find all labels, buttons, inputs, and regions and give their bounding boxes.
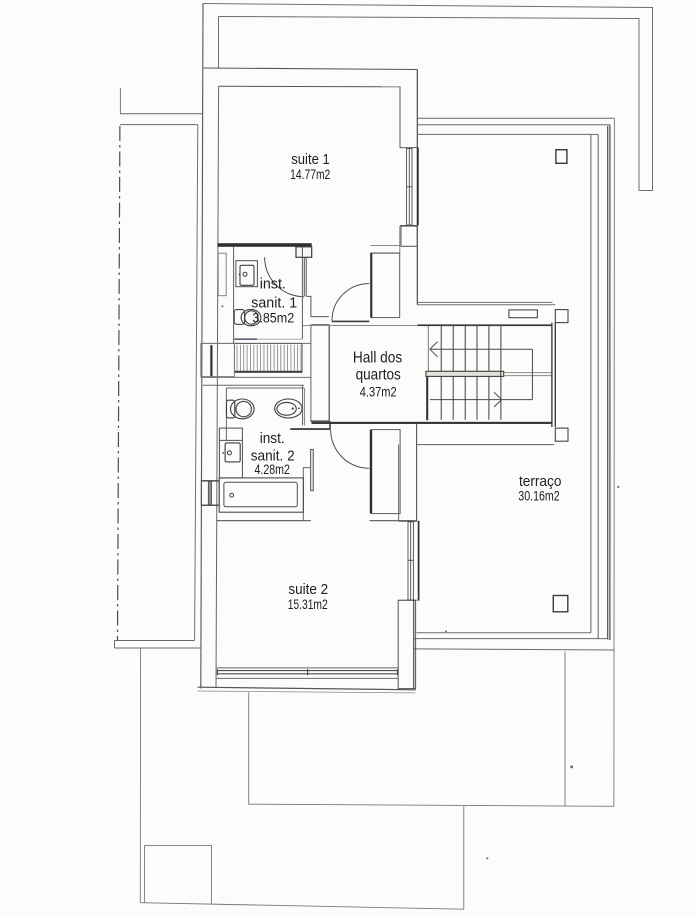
svg-text:4.28m2: 4.28m2 xyxy=(255,462,290,477)
svg-text:15.31m2: 15.31m2 xyxy=(288,597,328,612)
svg-text:14.77m2: 14.77m2 xyxy=(290,167,330,182)
svg-text:suite 2: suite 2 xyxy=(288,581,328,598)
svg-text:Hall dos: Hall dos xyxy=(353,349,402,366)
svg-text:sanit. 1: sanit. 1 xyxy=(251,295,297,312)
svg-text:suite 1: suite 1 xyxy=(291,151,330,168)
svg-text:3.85m2: 3.85m2 xyxy=(252,310,294,325)
svg-text:inst.: inst. xyxy=(260,276,286,293)
svg-text:30.16m2: 30.16m2 xyxy=(518,488,559,503)
svg-text:quartos: quartos xyxy=(356,366,401,383)
svg-text:inst.: inst. xyxy=(260,430,285,447)
svg-text:4.37m2: 4.37m2 xyxy=(360,385,397,400)
